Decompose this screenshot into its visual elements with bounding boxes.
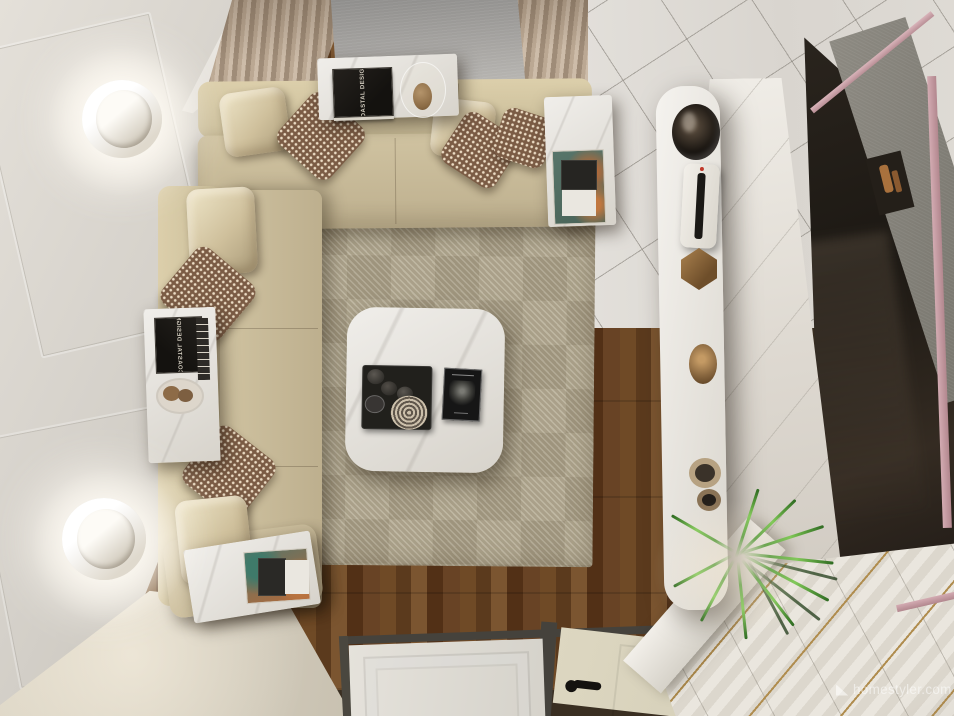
book-stack-dark-book	[561, 160, 597, 190]
bronze-bowl	[689, 344, 717, 384]
book-stack-paper	[562, 190, 596, 216]
book-stack-spines	[196, 318, 210, 380]
serving-tray	[361, 365, 432, 430]
niche-vase	[879, 164, 895, 193]
book-stack-dark-book	[258, 558, 286, 596]
homestyler-logo-icon	[836, 684, 849, 696]
door-molding	[363, 651, 532, 716]
cup	[381, 381, 397, 395]
book-title: COASTAL DESIGN	[175, 316, 183, 374]
console-power-light	[700, 167, 704, 171]
door-handle	[565, 673, 606, 693]
print-botanical	[448, 380, 475, 407]
living-room-render: COASTAL DESIGN COASTAL DESIGN	[0, 0, 954, 716]
sofa-pillow-plain	[218, 86, 292, 159]
record-player-disc	[672, 104, 720, 160]
white-door	[349, 639, 546, 716]
dome-content	[413, 83, 432, 110]
framed-print	[442, 368, 483, 422]
print-text-line	[454, 412, 468, 414]
coffee-table	[345, 307, 506, 474]
spiral-plate	[390, 395, 428, 430]
print-text-line	[452, 374, 474, 376]
console-slot	[694, 173, 705, 239]
sconce-shade-ring	[96, 90, 152, 148]
book-stack-paper	[285, 560, 309, 594]
glass	[365, 395, 385, 413]
watermark: homestyler.com	[836, 682, 952, 697]
wall-sconce	[62, 498, 146, 580]
decor-tray	[156, 378, 204, 414]
disc-highlight	[682, 112, 696, 132]
watermark-text: homestyler.com	[853, 682, 952, 697]
game-console	[680, 163, 720, 249]
book-title: COASTAL DESIGN	[359, 67, 367, 118]
tray-coaster	[178, 389, 193, 402]
cup	[367, 369, 384, 384]
sconce-shade-ring	[77, 509, 135, 569]
palm-plant	[640, 440, 860, 670]
decor-book-console: COASTAL DESIGN	[332, 67, 394, 118]
cushion-seam	[395, 138, 397, 224]
cushion-seam	[224, 328, 318, 329]
wall-sconce	[82, 80, 162, 158]
door-handle-lever	[573, 680, 602, 691]
glass-dome-decor	[400, 62, 446, 118]
